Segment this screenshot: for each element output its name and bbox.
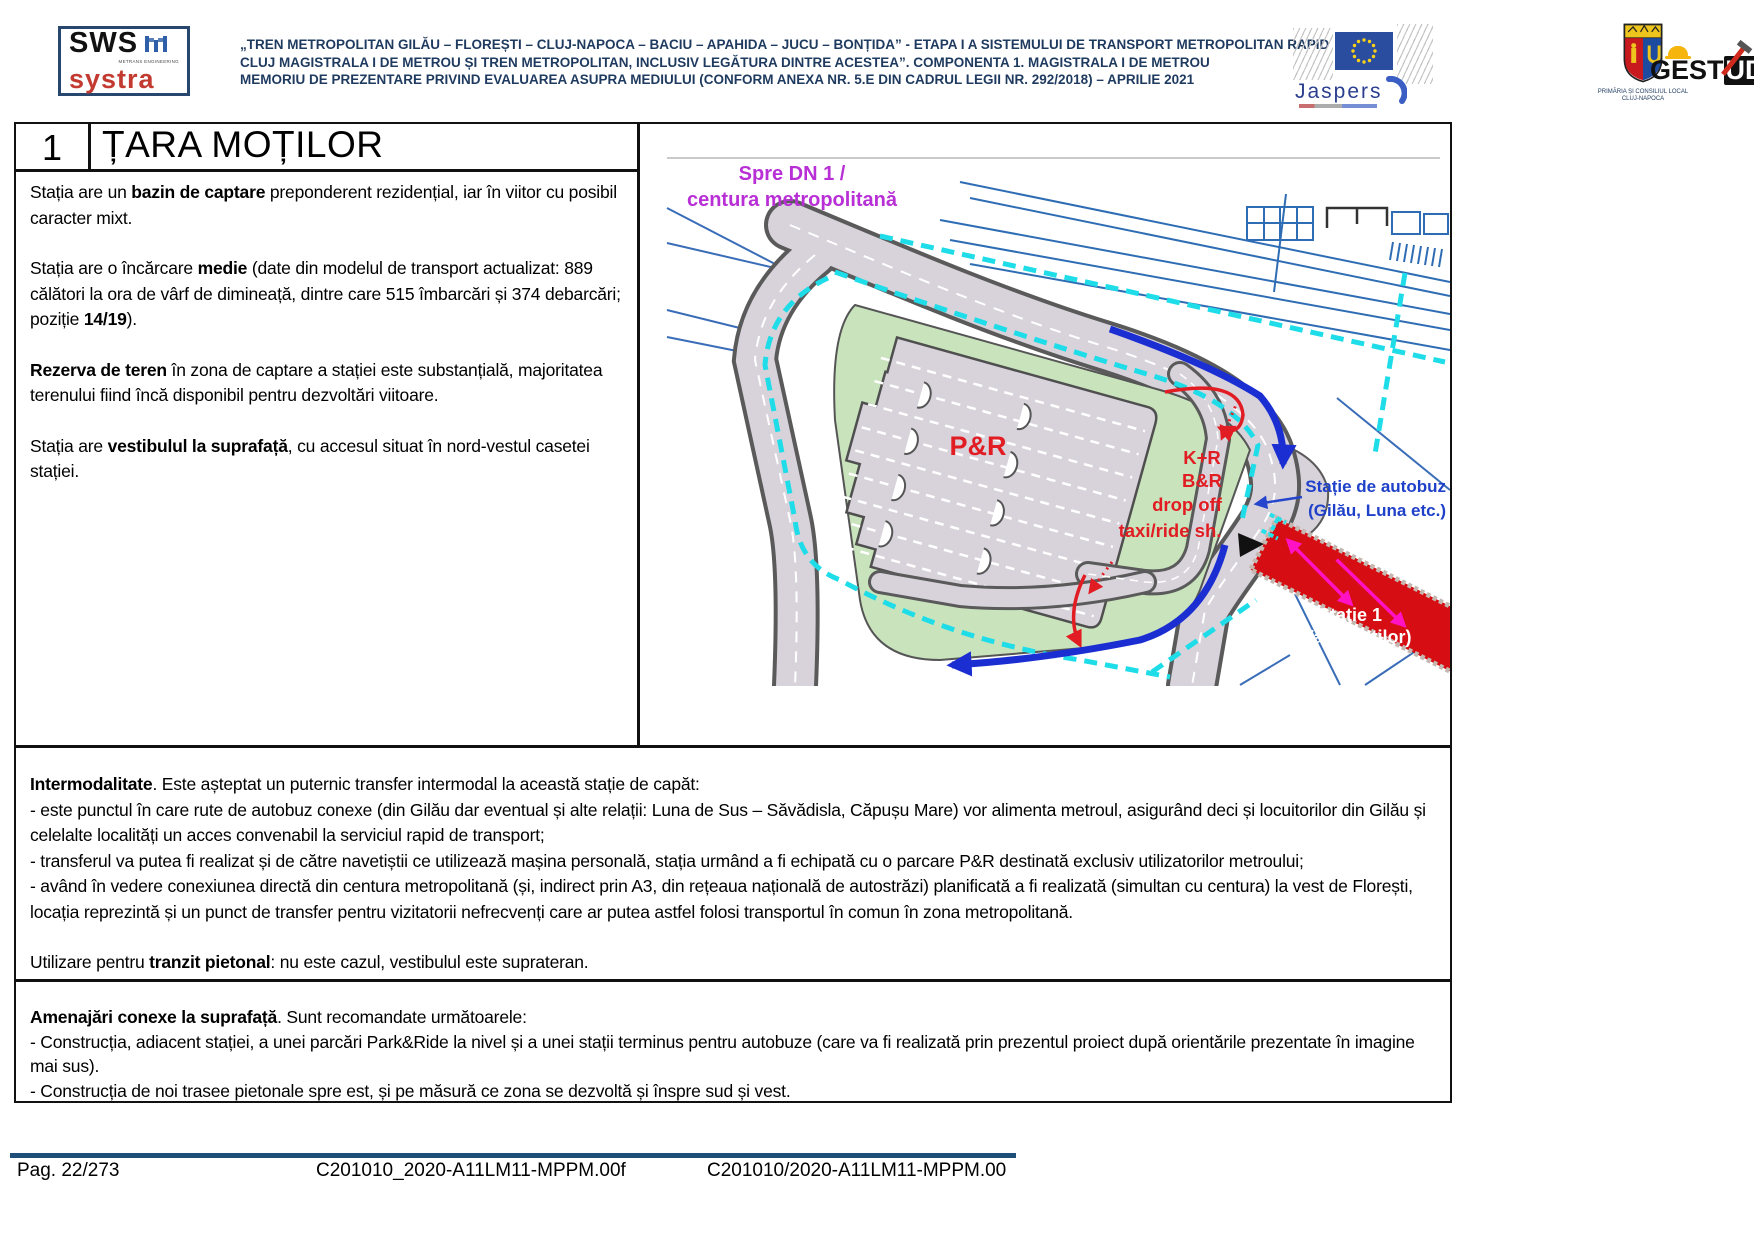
description-paragraph: Rezerva de teren în zona de captare a st…: [30, 358, 626, 409]
header-title-line-2: CLUJ MAGISTRALA I DE METROU ȘI TREN METR…: [240, 54, 1280, 72]
sws-logo-text: SWS: [69, 29, 138, 58]
drop-off-label: drop off: [1152, 494, 1223, 515]
document-page: { "header": { "logo_sws": "SWS", "logo_s…: [0, 0, 1754, 1240]
jaspers-subtext-bar: [1299, 104, 1377, 108]
header-title-line-1: „TREN METROPOLITAN GILĂU – FLOREȘTI – CL…: [240, 36, 1280, 54]
station-description-panel: Stația are un bazin de captare preponder…: [30, 180, 626, 510]
sws-systra-logo: SWS METRANS ENGINEERING systra: [58, 26, 190, 96]
station-map: Stație 1 (Țara Moților) Spre DN 1 / cent…: [640, 124, 1450, 686]
pr-label: P&R: [949, 431, 1006, 461]
station-name-title: ȚARA MOȚILOR: [102, 124, 383, 166]
header-title-line-3: MEMORIU DE PREZENTARE PRIVIND EVALUAREA …: [240, 71, 1280, 89]
intermodality-bullet: - având în vedere conexiunea directă din…: [30, 874, 1428, 925]
row-border-1: [14, 745, 1452, 748]
amenities-heading: Amenajări conexe la suprafață. Sunt reco…: [30, 1005, 1428, 1030]
document-reference-2: C201010/2020-A11LM11-MPPM.00: [707, 1160, 1006, 1182]
bus-stop-label-line-2: (Gilău, Luna etc.): [1308, 501, 1446, 520]
eu-flag-icon: [1335, 32, 1393, 70]
footer-rule: [10, 1153, 1016, 1158]
amenities-bullet: - Construcția de noi trasee pietonale sp…: [30, 1079, 1428, 1104]
systra-logo-text: systra: [69, 66, 179, 93]
description-paragraph: Stația are vestibulul la suprafață, cu a…: [30, 434, 626, 485]
intermodality-bullet: - transferul va putea fi realizat și de …: [30, 849, 1428, 875]
station-box-label-2: (Țara Moților): [1297, 627, 1412, 647]
station-number: 1: [14, 127, 90, 169]
eu-building-graphic-right: [1397, 24, 1433, 84]
geostud-logo: GESTUD: [1650, 56, 1750, 100]
jaspers-eu-logo: Jaspers: [1293, 24, 1453, 110]
surface-amenities-panel: Amenajări conexe la suprafață. Sunt reco…: [30, 1005, 1428, 1103]
metro-station-box: [1244, 514, 1450, 678]
metrans-m-icon: [144, 34, 168, 56]
document-reference-1: C201010_2020-A11LM11-MPPM.00f: [316, 1160, 626, 1182]
title-row-border: [14, 169, 637, 172]
geostud-text-st: ST: [1689, 57, 1724, 84]
row-border-2: [14, 979, 1452, 982]
kiss-and-ride-label: K+R: [1183, 447, 1221, 468]
intermodality-panel: Intermodalitate. Este așteptat un putern…: [30, 772, 1428, 976]
jaspers-wordmark: Jaspers: [1295, 80, 1383, 104]
jaspers-crescent-icon: [1385, 76, 1407, 104]
helmet-icon: [1668, 46, 1688, 57]
dn1-label-line-2: centura metropolitană: [687, 189, 898, 211]
taxi-label: taxi/ride sh.: [1119, 520, 1222, 541]
dn1-label-line-1: Spre DN 1 /: [739, 163, 846, 185]
pedestrian-transit-note: Utilizare pentru tranzit pietonal: nu es…: [30, 950, 1428, 976]
description-paragraph: Stația are o încărcare medie (date din m…: [30, 256, 626, 333]
document-header-title: „TREN METROPOLITAN GILĂU – FLOREȘTI – CL…: [240, 36, 1280, 89]
eu-building-graphic-left: [1293, 28, 1333, 80]
geostud-text-ge: GE: [1650, 57, 1689, 84]
page-number: Pag. 22/273: [17, 1160, 119, 1182]
intermodality-bullet: - este punctul în care rute de autobuz c…: [30, 798, 1428, 849]
amenities-bullet: - Construcția, adiacent stației, a unei …: [30, 1030, 1428, 1079]
bus-stop-label-line-1: Stație de autobuz: [1305, 477, 1446, 496]
station-box-label-1: Stație 1: [1318, 605, 1382, 625]
description-paragraph: Stația are un bazin de captare preponder…: [30, 180, 626, 231]
intermodality-heading: Intermodalitate. Este așteptat un putern…: [30, 772, 1428, 798]
bike-and-ride-label: B&R: [1182, 470, 1222, 491]
buildings-topright: [1247, 194, 1448, 292]
